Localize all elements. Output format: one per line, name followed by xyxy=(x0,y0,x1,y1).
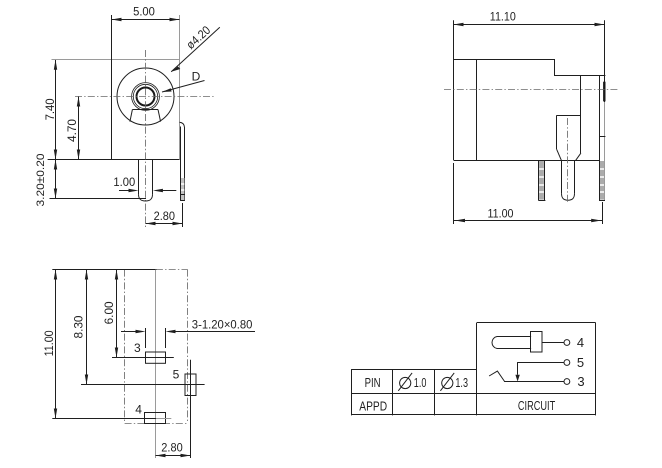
svg-text:4: 4 xyxy=(135,403,142,417)
svg-text:APPD: APPD xyxy=(359,398,387,413)
svg-text:2.80: 2.80 xyxy=(161,441,183,455)
svg-text:4: 4 xyxy=(577,335,584,350)
svg-text:3: 3 xyxy=(577,374,584,389)
svg-text:6.00: 6.00 xyxy=(102,301,116,324)
svg-text:2.80: 2.80 xyxy=(154,209,176,223)
svg-text:1.3: 1.3 xyxy=(455,375,468,390)
svg-text:5.00: 5.00 xyxy=(133,5,155,19)
svg-text:3: 3 xyxy=(134,341,141,355)
svg-text:CIRCUIT: CIRCUIT xyxy=(518,398,555,413)
svg-text:7.40: 7.40 xyxy=(43,98,57,120)
svg-text:5: 5 xyxy=(577,355,584,370)
svg-text:3.20±0.20: 3.20±0.20 xyxy=(35,154,47,207)
svg-text:5: 5 xyxy=(173,367,180,381)
svg-text:D: D xyxy=(192,69,201,83)
svg-text:8.30: 8.30 xyxy=(71,315,85,338)
svg-text:PIN: PIN xyxy=(365,375,381,390)
svg-text:11.00: 11.00 xyxy=(488,207,514,221)
svg-text:4.70: 4.70 xyxy=(65,119,79,142)
svg-text:11.00: 11.00 xyxy=(42,330,56,356)
svg-text:11.10: 11.10 xyxy=(490,9,516,23)
svg-text:1.0: 1.0 xyxy=(414,375,427,390)
svg-text:3-1.20×0.80: 3-1.20×0.80 xyxy=(192,318,253,332)
svg-text:1.00: 1.00 xyxy=(113,175,135,189)
